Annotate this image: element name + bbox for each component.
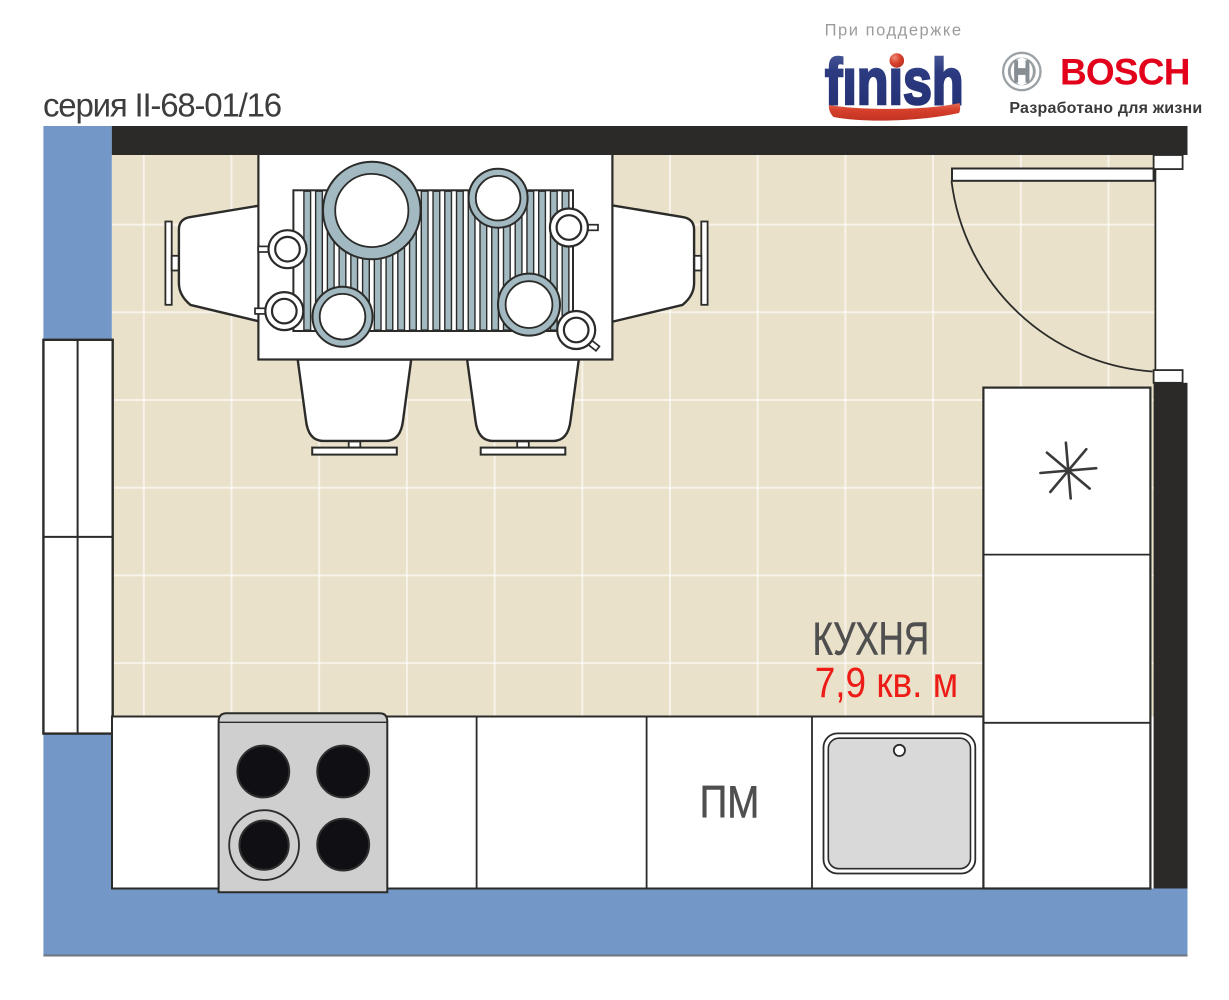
svg-text:серия II-68-01/16: серия II-68-01/16 bbox=[43, 87, 281, 124]
svg-text:КУХНЯ: КУХНЯ bbox=[813, 612, 929, 664]
svg-text:ПМ: ПМ bbox=[700, 776, 760, 827]
svg-text:Разработано для жизни: Разработано для жизни bbox=[1009, 100, 1202, 117]
svg-text:При поддержке: При поддержке bbox=[825, 22, 963, 40]
svg-text:7,9 кв. м: 7,9 кв. м bbox=[815, 660, 958, 707]
svg-text:BOSCH: BOSCH bbox=[1060, 52, 1190, 93]
